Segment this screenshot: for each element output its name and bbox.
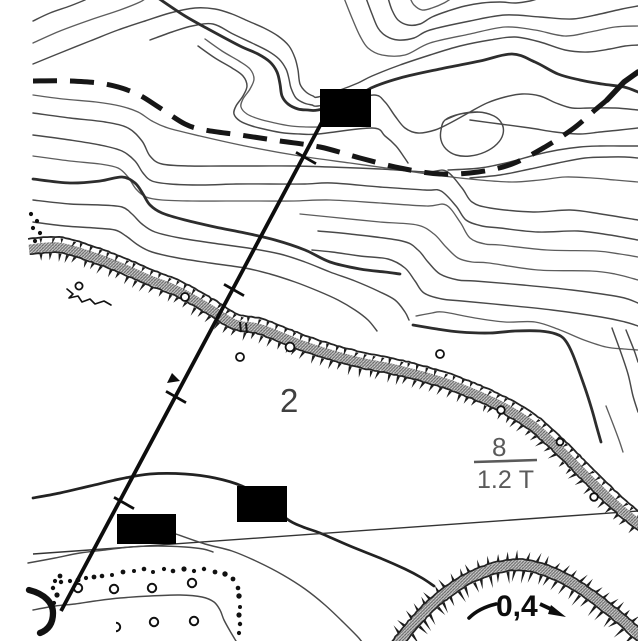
svg-text:0,4: 0,4 (496, 590, 538, 623)
svg-text:1.2 Т: 1.2 Т (477, 466, 534, 494)
svg-text:8: 8 (492, 432, 506, 462)
svg-text:2: 2 (280, 382, 298, 419)
